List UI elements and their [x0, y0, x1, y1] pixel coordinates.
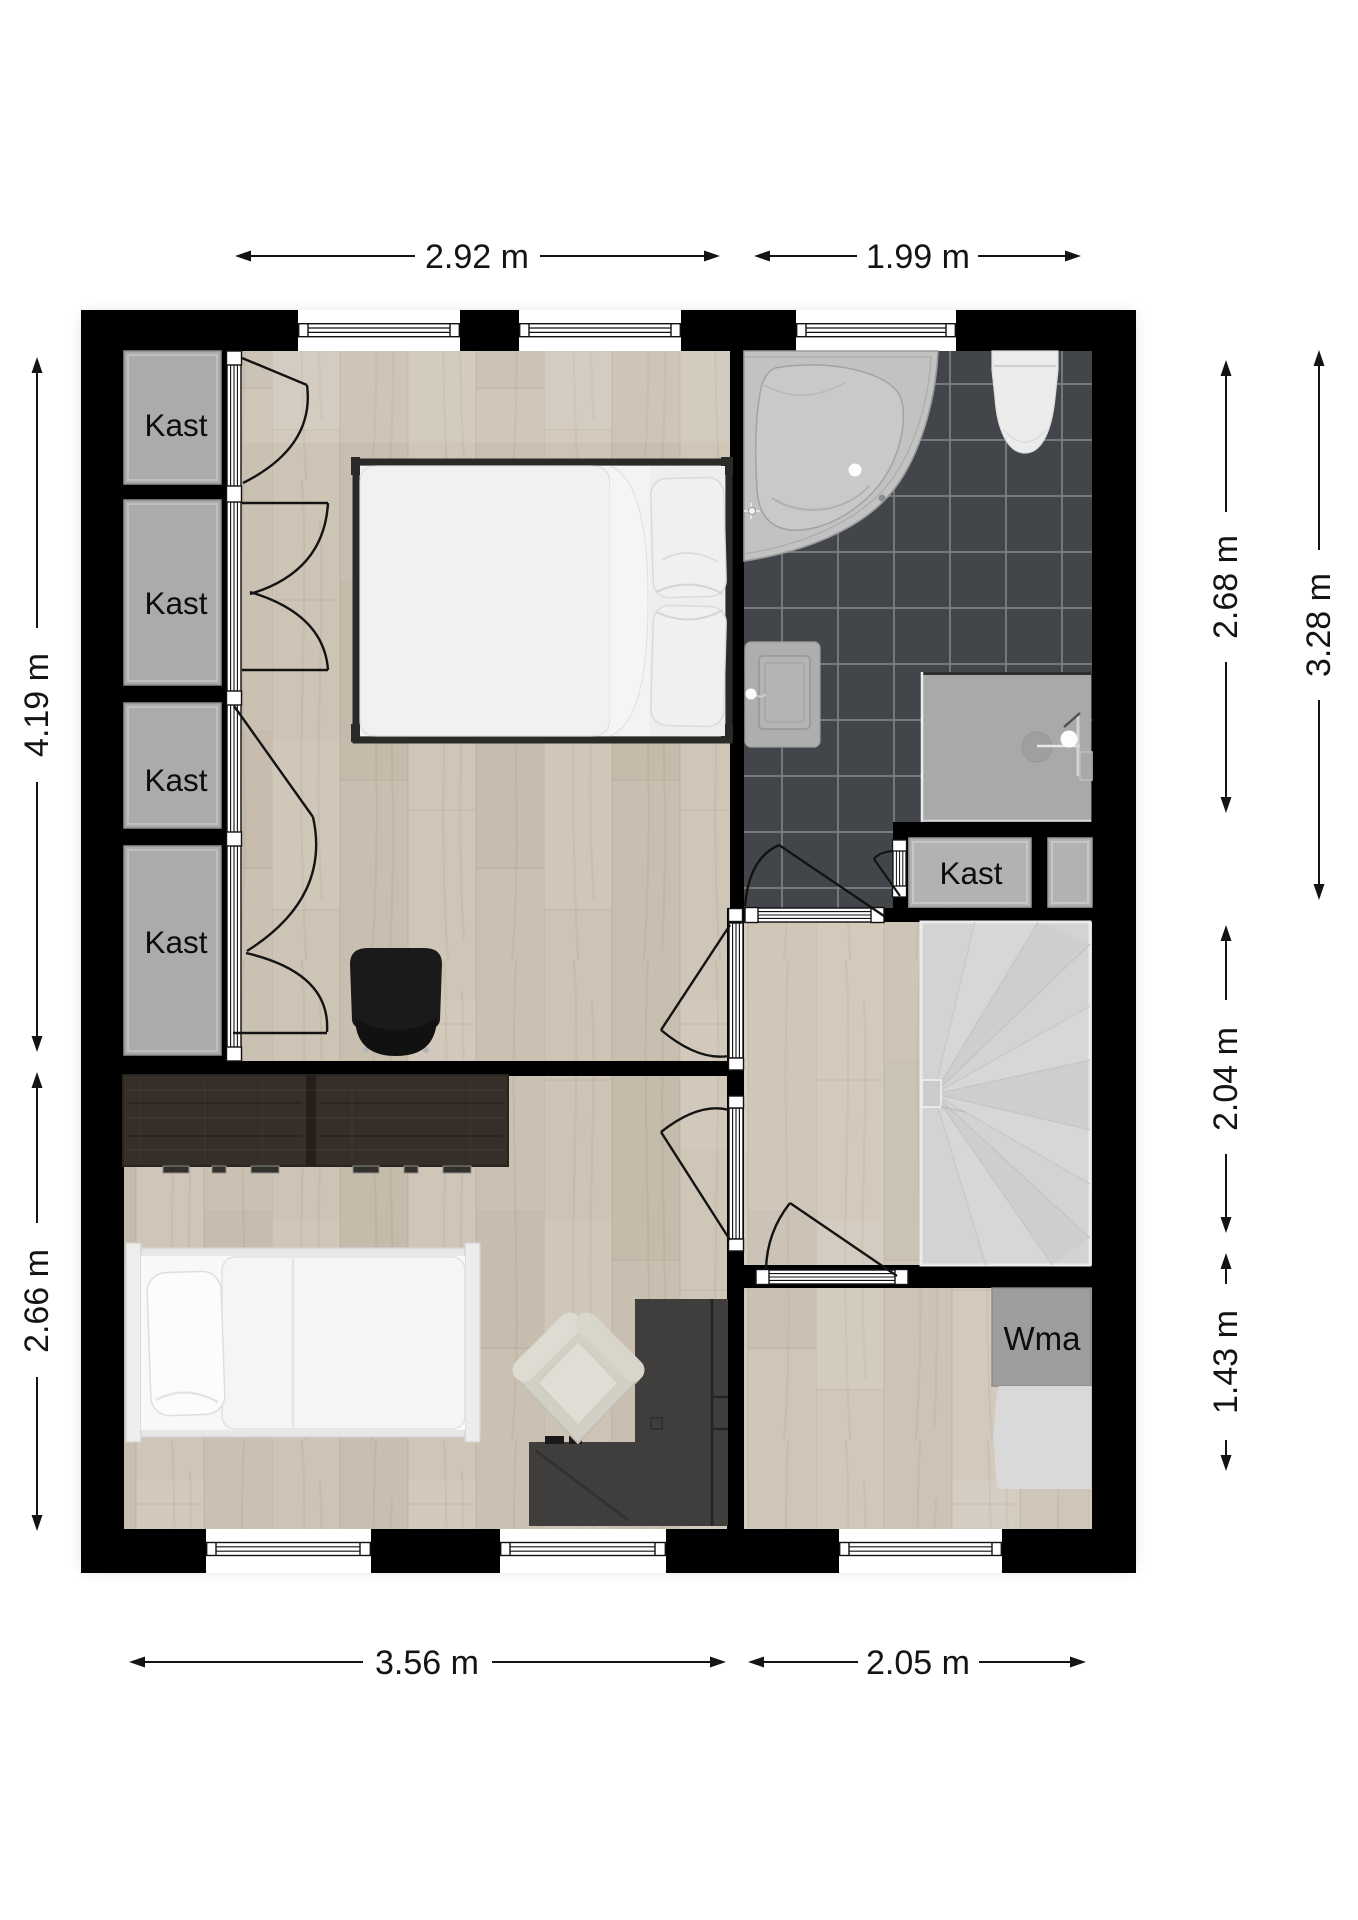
- svg-text:3.28 m: 3.28 m: [1300, 573, 1338, 677]
- svg-text:Kast: Kast: [144, 407, 207, 443]
- svg-text:Wma: Wma: [1004, 1320, 1082, 1357]
- svg-text:Kast: Kast: [939, 855, 1002, 891]
- svg-text:2.68 m: 2.68 m: [1207, 535, 1245, 639]
- svg-text:1.43 m: 1.43 m: [1207, 1310, 1245, 1414]
- svg-text:2.66 m: 2.66 m: [18, 1249, 56, 1353]
- svg-text:4.19 m: 4.19 m: [18, 653, 56, 757]
- svg-text:Kast: Kast: [144, 762, 207, 798]
- svg-text:1.99 m: 1.99 m: [866, 238, 970, 276]
- svg-text:3.56 m: 3.56 m: [375, 1644, 479, 1682]
- svg-text:2.04 m: 2.04 m: [1207, 1027, 1245, 1131]
- svg-text:Kast: Kast: [144, 585, 207, 621]
- svg-text:2.92 m: 2.92 m: [425, 238, 529, 276]
- svg-text:2.05 m: 2.05 m: [866, 1644, 970, 1682]
- svg-text:Kast: Kast: [144, 924, 207, 960]
